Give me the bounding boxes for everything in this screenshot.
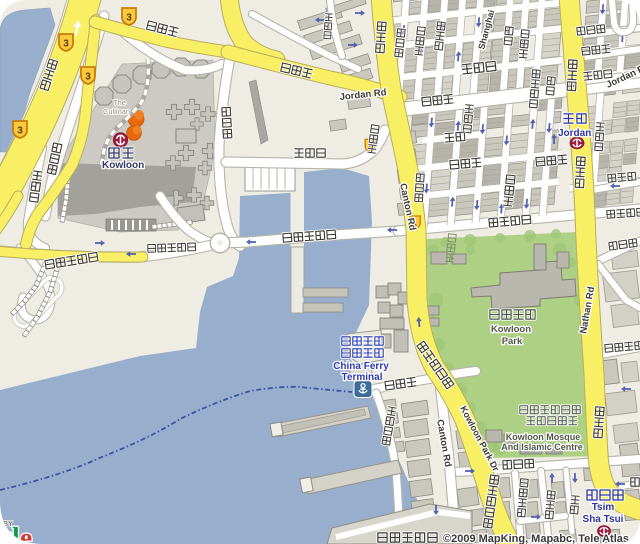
svg-text:Park: Park (502, 336, 523, 347)
svg-text:3: 3 (85, 72, 91, 83)
svg-text:Kowloon Mosque: Kowloon Mosque (506, 432, 581, 442)
svg-text:Kowloon: Kowloon (491, 324, 531, 335)
svg-text:©2009 MapKing, Mapabc, Tele At: ©2009 MapKing, Mapabc, Tele Atlas - (443, 533, 636, 544)
svg-text:gle: gle (0, 523, 32, 544)
svg-text:Jordan: Jordan (558, 128, 591, 139)
svg-text:The: The (113, 98, 126, 107)
svg-text:China Ferry: China Ferry (333, 361, 389, 372)
svg-text:Tsim: Tsim (592, 502, 615, 513)
svg-text:Kowloon: Kowloon (102, 160, 144, 171)
svg-text:And Islamic Centre: And Islamic Centre (501, 442, 583, 452)
svg-text:3: 3 (17, 126, 23, 137)
svg-text:Sha Tsui: Sha Tsui (583, 514, 624, 525)
svg-text:Cullinan: Cullinan (103, 107, 130, 116)
svg-text:3: 3 (63, 39, 69, 50)
svg-text:Terminal: Terminal (342, 372, 383, 383)
svg-text:3: 3 (126, 13, 132, 24)
